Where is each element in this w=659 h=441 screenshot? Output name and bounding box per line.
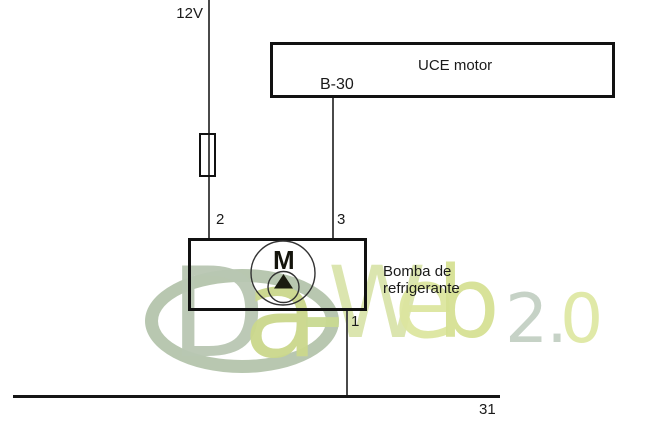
pump-name-line2: refrigerante: [383, 280, 460, 297]
supply-voltage-label: 12V: [173, 5, 203, 22]
uce-pin-b30-label: B-30: [320, 76, 354, 94]
ground-line: [13, 395, 500, 398]
circuit-layer: 12V UCE motor B-30 2 3 M Bomba de refrig…: [0, 0, 659, 441]
pin-1-label: 1: [351, 313, 359, 330]
pin-3-label: 3: [337, 211, 345, 228]
terminal-31-label: 31: [479, 401, 496, 418]
motor-m-symbol: M: [273, 247, 295, 273]
ground-wire: [346, 311, 348, 397]
pin-2-label: 2: [216, 211, 224, 228]
uce-motor-box: UCE motor B-30: [270, 42, 615, 98]
wiring-diagram-page: D a - W e b 2. 0 12V UCE motor B-30 2 3 …: [0, 0, 659, 441]
pump-name-line1: Bomba de: [383, 263, 460, 280]
fuse-icon: [199, 133, 216, 177]
supply-wire: [208, 0, 210, 238]
uce-motor-title: UCE motor: [418, 57, 492, 74]
pump-name-label: Bomba de refrigerante: [383, 263, 460, 297]
b30-wire: [332, 98, 334, 238]
